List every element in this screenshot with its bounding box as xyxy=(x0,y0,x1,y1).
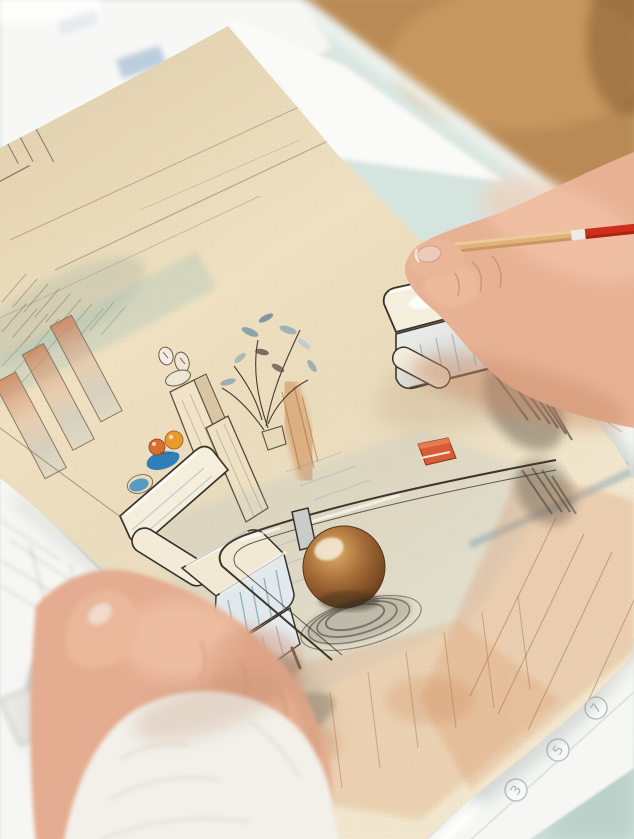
fruit-red xyxy=(149,439,165,455)
fruit-orange xyxy=(165,431,183,449)
pencil-band xyxy=(571,229,586,240)
photo-stage: 7 5 3 xyxy=(0,0,634,839)
